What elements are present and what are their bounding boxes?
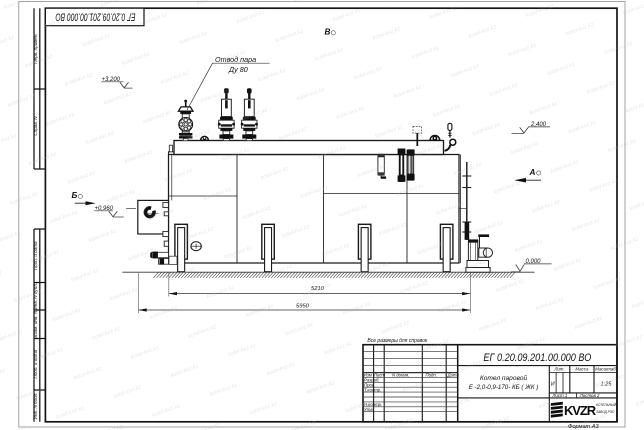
svg-text:Подп. и дата: Подп. и дата: [33, 241, 38, 270]
svg-text:А: А: [529, 168, 536, 177]
svg-text:Все размеры для справок: Все размеры для справок: [367, 338, 428, 344]
svg-text:0,000: 0,000: [526, 259, 542, 265]
svg-text:Листов 2: Листов 2: [579, 393, 600, 398]
svg-text:И: И: [551, 382, 555, 388]
svg-text:5950: 5950: [296, 304, 310, 310]
svg-text:N докум.: N докум.: [392, 373, 409, 378]
svg-text:Масштаб: Масштаб: [595, 367, 616, 372]
svg-text:Масса: Масса: [575, 367, 589, 372]
svg-text:ЗАВОД РЭП: ЗАВОД РЭП: [596, 410, 615, 414]
svg-text:Утв.: Утв.: [364, 407, 374, 412]
svg-text:КОТЕЛЬНЫЙ: КОТЕЛЬНЫЙ: [596, 403, 617, 407]
svg-text:Дата: Дата: [447, 373, 460, 378]
svg-text:Б: Б: [72, 191, 78, 200]
svg-text:KVZR: KVZR: [564, 403, 597, 418]
svg-text:В: В: [325, 28, 331, 37]
svg-text:Ду 80: Ду 80: [228, 65, 248, 74]
svg-text:Т.контр.: Т.контр.: [364, 387, 381, 392]
svg-text:Подп. и дата: Подп. и дата: [33, 349, 38, 378]
svg-text:Подп.: Подп.: [426, 373, 437, 378]
svg-text:2,400: 2,400: [530, 122, 547, 128]
svg-text:Справ. N: Справ. N: [33, 116, 38, 136]
svg-text:Взам. инв. N: Взам. инв. N: [33, 310, 38, 337]
